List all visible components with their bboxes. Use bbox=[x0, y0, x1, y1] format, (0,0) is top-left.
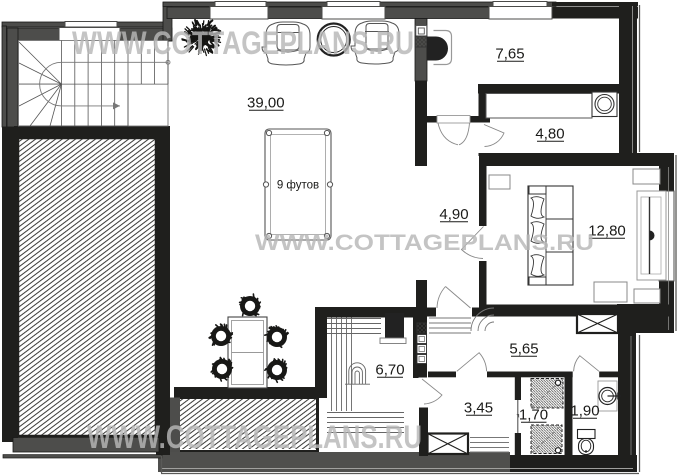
svg-text:5,65: 5,65 bbox=[509, 341, 538, 358]
svg-text:39,00: 39,00 bbox=[247, 95, 285, 112]
svg-text:9 футов: 9 футов bbox=[277, 180, 319, 192]
svg-text:WWW.COTTAGEPLANS.RU: WWW.COTTAGEPLANS.RU bbox=[72, 25, 414, 61]
svg-text:4,80: 4,80 bbox=[535, 126, 564, 143]
svg-text:6,70: 6,70 bbox=[375, 362, 404, 379]
svg-text:1,70: 1,70 bbox=[519, 407, 548, 424]
svg-text:4,90: 4,90 bbox=[439, 206, 468, 223]
svg-text:WWW.COTTAGEPLANS.RU: WWW.COTTAGEPLANS.RU bbox=[255, 230, 594, 255]
svg-text:1,90: 1,90 bbox=[570, 403, 599, 420]
svg-text:7,65: 7,65 bbox=[495, 46, 524, 63]
svg-text:3,45: 3,45 bbox=[464, 400, 493, 417]
svg-text:WWW.COTTAGEPLANS.RU: WWW.COTTAGEPLANS.RU bbox=[87, 419, 422, 455]
